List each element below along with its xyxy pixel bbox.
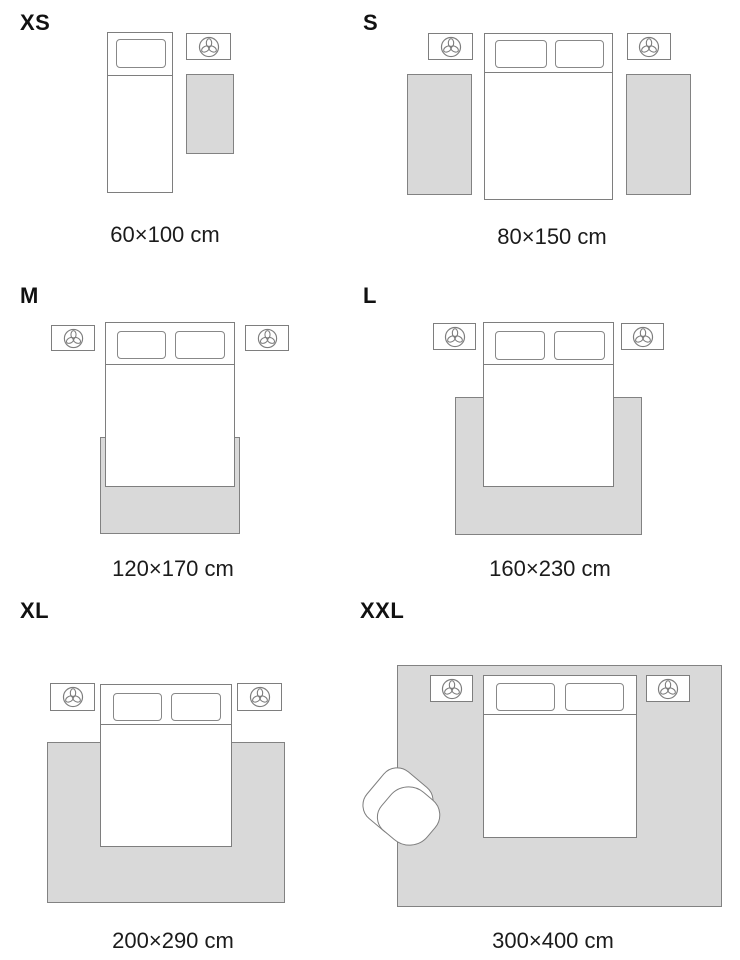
pillow <box>555 40 604 68</box>
plant-top-view-icon <box>198 36 220 58</box>
bed-double-m <box>105 322 235 487</box>
plant-top-view-icon <box>638 36 660 58</box>
size-label-xxl: XXL <box>360 598 404 624</box>
pillow <box>496 683 555 711</box>
size-caption-m: 120×170 cm <box>112 556 234 582</box>
pillow <box>175 331 225 359</box>
pillow <box>116 39 166 68</box>
plant-top-view-icon <box>657 678 679 700</box>
nightstand-s-right <box>627 33 671 60</box>
plant-top-view-icon <box>441 678 463 700</box>
bed-double-l <box>483 322 614 487</box>
plant-top-view-icon <box>632 326 654 348</box>
nightstand-m-left <box>51 325 95 351</box>
rug-size-guide: XS 60×100 cm S <box>0 0 740 960</box>
pillow <box>495 40 547 68</box>
bed-single-xs <box>107 32 173 193</box>
size-label-m: M <box>20 283 39 309</box>
size-caption-xl: 200×290 cm <box>112 928 234 954</box>
bed-double-xxl <box>483 675 637 838</box>
pillow <box>171 693 221 721</box>
nightstand-xxl-left <box>430 675 473 702</box>
plant-top-view-icon <box>440 36 462 58</box>
bed-double-s <box>484 33 613 200</box>
nightstand-m-right <box>245 325 289 351</box>
nightstand-l-left <box>433 323 476 350</box>
rug-s-right <box>626 74 691 195</box>
pillow <box>495 331 545 360</box>
plant-top-view-icon <box>62 686 84 708</box>
rug-xs <box>186 74 234 154</box>
size-label-xs: XS <box>20 10 50 36</box>
pillow <box>554 331 605 360</box>
bed-double-xl <box>100 684 232 847</box>
pillow <box>113 693 162 721</box>
nightstand-xxl-right <box>646 675 690 702</box>
size-label-s: S <box>363 10 378 36</box>
nightstand-xl-left <box>50 683 95 711</box>
rug-s-left <box>407 74 472 195</box>
size-caption-xxl: 300×400 cm <box>492 928 614 954</box>
pillow <box>565 683 624 711</box>
pillow <box>117 331 166 359</box>
size-caption-xs: 60×100 cm <box>110 222 219 248</box>
size-caption-l: 160×230 cm <box>489 556 611 582</box>
plant-top-view-icon <box>249 686 271 708</box>
plant-top-view-icon <box>63 328 84 349</box>
size-label-xl: XL <box>20 598 49 624</box>
nightstand-xl-right <box>237 683 282 711</box>
nightstand-xs <box>186 33 231 60</box>
nightstand-l-right <box>621 323 664 350</box>
plant-top-view-icon <box>444 326 466 348</box>
size-caption-s: 80×150 cm <box>497 224 606 250</box>
nightstand-s-left <box>428 33 473 60</box>
size-label-l: L <box>363 283 377 309</box>
plant-top-view-icon <box>257 328 278 349</box>
